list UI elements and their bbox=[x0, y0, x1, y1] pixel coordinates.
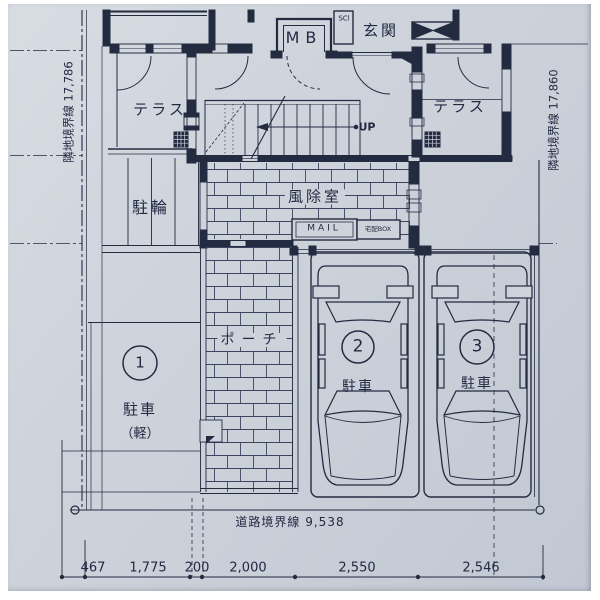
floor-plan-page: { "colors": { "paper": "#ccd1d9", "line"… bbox=[0, 0, 600, 600]
dimension-467: 467 bbox=[81, 562, 106, 575]
road-boundary-label: 道路境界線 9,538 bbox=[235, 516, 344, 528]
dimension-2000: 2,000 bbox=[229, 562, 266, 575]
parking-space-1-label: 駐車 bbox=[123, 403, 157, 418]
meter-box-label: MB bbox=[286, 30, 323, 46]
terrace-left-label: テラス bbox=[133, 103, 187, 118]
dimension-2550: 2,550 bbox=[338, 562, 375, 575]
shoe-closet-label: SCl bbox=[338, 16, 349, 23]
boundary-right-label: 隣地境界線 17,860 bbox=[548, 69, 560, 170]
windbreak-room-label: 風除室 bbox=[285, 190, 345, 205]
dimension-200: 200 bbox=[185, 562, 210, 575]
entrance-label: 玄関 bbox=[363, 24, 399, 39]
boundary-left-label: 隣地境界線 17,786 bbox=[63, 61, 75, 162]
mailbox-label: MAIL bbox=[307, 225, 341, 234]
parking-space-2-label: 駐車 bbox=[342, 380, 374, 394]
parking-space-2-number: 2 bbox=[353, 339, 364, 356]
stairs-up-label: UP bbox=[359, 122, 376, 133]
parking-space-3-number: 3 bbox=[472, 339, 483, 356]
bicycle-parking-label: 駐輪 bbox=[132, 200, 170, 216]
dimension-1775: 1,775 bbox=[129, 562, 166, 575]
floor-plan-linework bbox=[0, 0, 600, 600]
parking-space-1-number: 1 bbox=[135, 356, 145, 371]
porch-label: ポーチ bbox=[218, 333, 287, 347]
parking-space-3-label: 駐車 bbox=[461, 377, 493, 391]
dimension-2546: 2,546 bbox=[462, 562, 499, 575]
delivery-box-label: 宅配BOX bbox=[365, 226, 392, 233]
terrace-right-label: テラス bbox=[433, 100, 487, 115]
parking-space-1-sub-label: （軽） bbox=[120, 428, 159, 441]
